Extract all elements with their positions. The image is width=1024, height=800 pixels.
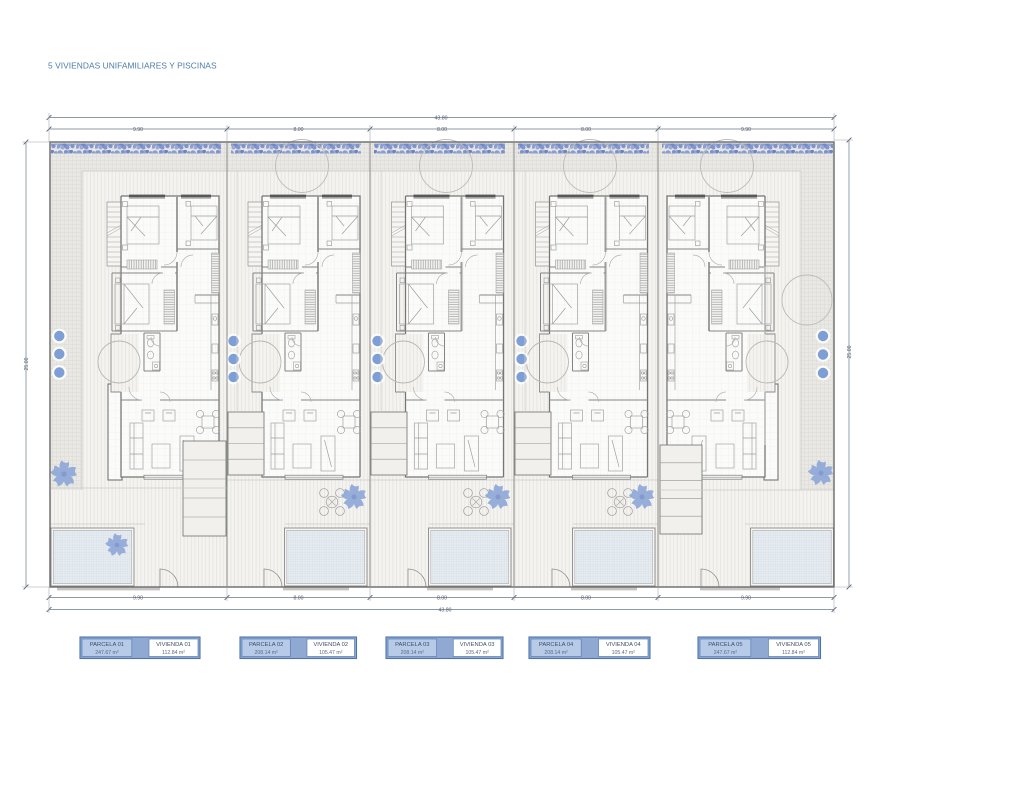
- svg-text:8.00: 8.00: [581, 127, 591, 133]
- svg-text:VIVIENDA 04: VIVIENDA 04: [606, 642, 642, 648]
- svg-text:8.00: 8.00: [437, 127, 447, 133]
- svg-text:VIVIENDA 03: VIVIENDA 03: [460, 642, 495, 648]
- svg-text:43.80: 43.80: [439, 607, 452, 613]
- svg-text:25.00: 25.00: [24, 357, 30, 370]
- svg-text:112.84 m²: 112.84 m²: [782, 650, 805, 656]
- svg-text:9.90: 9.90: [741, 595, 751, 601]
- svg-text:208.14 m²: 208.14 m²: [544, 650, 568, 656]
- svg-text:9.90: 9.90: [133, 595, 143, 601]
- svg-text:25.00: 25.00: [847, 345, 853, 358]
- svg-text:PARCELA 03: PARCELA 03: [395, 642, 429, 648]
- svg-text:8.00: 8.00: [581, 595, 591, 601]
- svg-text:8.00: 8.00: [293, 595, 303, 601]
- svg-text:105.47 m²: 105.47 m²: [319, 650, 343, 656]
- svg-text:105.47 m²: 105.47 m²: [465, 650, 489, 656]
- svg-text:247.67 m²: 247.67 m²: [714, 650, 738, 656]
- svg-text:112.84 m²: 112.84 m²: [162, 650, 185, 656]
- svg-text:9.90: 9.90: [133, 127, 143, 133]
- svg-text:VIVIENDA 01: VIVIENDA 01: [156, 642, 191, 648]
- svg-text:208.14 m²: 208.14 m²: [401, 650, 425, 656]
- svg-text:PARCELA 05: PARCELA 05: [708, 642, 742, 648]
- svg-text:43.80: 43.80: [435, 115, 448, 121]
- svg-text:105.47 m²: 105.47 m²: [612, 650, 636, 656]
- svg-text:PARCELA 02: PARCELA 02: [249, 642, 283, 648]
- svg-text:PARCELA 04: PARCELA 04: [539, 642, 574, 648]
- svg-text:5 VIVIENDAS UNIFAMILIARES Y PI: 5 VIVIENDAS UNIFAMILIARES Y PISCINAS: [48, 61, 217, 71]
- svg-text:8.00: 8.00: [293, 127, 303, 133]
- svg-text:208.14 m²: 208.14 m²: [254, 650, 278, 656]
- svg-text:247.67 m²: 247.67 m²: [95, 650, 119, 656]
- svg-text:9.90: 9.90: [741, 127, 751, 133]
- svg-text:8.00: 8.00: [437, 595, 447, 601]
- svg-text:VIVIENDA 02: VIVIENDA 02: [313, 642, 348, 648]
- svg-text:VIVIENDA 05: VIVIENDA 05: [776, 642, 811, 648]
- svg-text:PARCELA 01: PARCELA 01: [90, 642, 124, 648]
